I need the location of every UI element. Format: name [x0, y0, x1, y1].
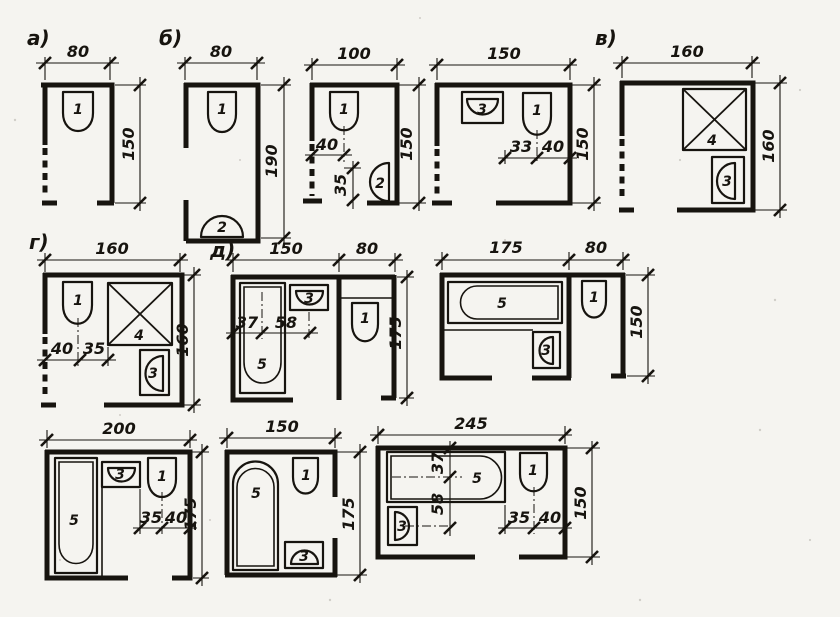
toilet-symbol: 1	[63, 92, 93, 131]
plan-b-label: б)	[159, 26, 182, 50]
fixture-number: 2	[217, 220, 227, 236]
plan-g-height-dim: 160	[173, 267, 201, 413]
fixture-number: 1	[339, 102, 349, 118]
plan-d: 150 150 3 1 33 40	[429, 44, 601, 211]
floor-plan-sheet: а) 80 150 1 б) 80	[0, 0, 840, 617]
dim-value: 40	[50, 339, 73, 358]
plan-g-label: г)	[29, 230, 49, 254]
fixture-number: 3	[304, 291, 314, 307]
fixture-number: 3	[397, 519, 407, 535]
fixture-number: 1	[217, 102, 227, 118]
plan-k: 245 150 5 3 37 58	[370, 414, 600, 565]
plan-a-height-dim: 150	[115, 77, 146, 211]
plan-b-width-dim: 80	[177, 42, 265, 80]
dim-value: 40	[541, 137, 564, 156]
washbasin-symbol: 3	[140, 350, 169, 395]
dim-value: 58	[275, 313, 297, 332]
plan-v: в) 160 160 4 3	[595, 26, 787, 218]
plan-v-walls	[619, 81, 753, 210]
paper-noise	[14, 17, 811, 601]
fixture-number: 1	[73, 102, 83, 118]
fixture-number: 1	[532, 103, 542, 119]
plan-k-width-dim: 245	[370, 414, 572, 444]
dim-value: 40	[538, 508, 561, 527]
plan-dd-label: д)	[209, 238, 235, 262]
washbasin-symbol: 3	[462, 92, 503, 123]
plan-c: 100 150 1 40 35 2	[303, 44, 426, 211]
washbasin-symbol: 3	[285, 542, 323, 568]
fixture-number: 5	[69, 513, 79, 529]
fixture-number: 3	[115, 467, 125, 483]
plan-g-width-value: 160	[95, 239, 128, 258]
dim-value: 37	[428, 451, 447, 474]
toilet-symbol: 1	[523, 93, 551, 135]
dim-value: 40	[164, 508, 187, 527]
fixture-number: 1	[301, 468, 311, 484]
plan-i: 200 175 5 3 1 35	[39, 419, 209, 586]
plan-dd: д) 150 80 175 5 3	[209, 238, 414, 406]
plan-a-height-value: 150	[119, 127, 138, 160]
dim-value: 35	[508, 508, 530, 527]
toilet-symbol: 1	[208, 92, 236, 132]
plan-j-height-dim: 175	[337, 444, 367, 583]
fixture-number: 3	[722, 174, 732, 190]
plan-d-height-dim: 150	[572, 77, 601, 211]
dim-value: 58	[428, 493, 447, 515]
dim-value: 35	[331, 174, 350, 196]
plan-a-walls	[41, 83, 114, 203]
plan-i-width-value: 200	[102, 419, 135, 438]
fixture-number: 3	[541, 343, 551, 359]
plan-j: 150 175 5 1 3	[219, 417, 367, 583]
plan-k-height-dim: 150	[567, 441, 600, 565]
bathtub-symbol: 5	[55, 458, 97, 573]
fixture-number: 4	[133, 328, 144, 344]
plan-g-inner-dims: 40 35	[37, 339, 116, 366]
toilet-symbol: 1	[63, 282, 92, 324]
plan-k-inner-dims: 35 40	[498, 505, 572, 534]
bathtub-symbol: 5	[448, 282, 562, 323]
plan-h-width-dims: 175 80	[434, 238, 630, 270]
fixture-number: 5	[472, 471, 482, 487]
plan-h-width-left-value: 175	[489, 238, 522, 257]
washbasin-symbol: 2	[370, 163, 389, 201]
plan-j-width-value: 150	[265, 417, 298, 436]
fixture-number: 3	[477, 102, 487, 118]
dim-value: 35	[140, 508, 162, 527]
fixture-number: 5	[257, 357, 267, 373]
washbasin-symbol: 3	[712, 157, 744, 203]
plan-c-width-value: 100	[337, 44, 370, 63]
dim-value: 40	[315, 135, 338, 154]
plan-c-height-value: 150	[397, 127, 416, 160]
washbasin-symbol: 2	[201, 216, 243, 237]
fixture-number: 3	[299, 549, 309, 565]
plan-a-label: а)	[27, 26, 50, 50]
washbasin-symbol: 3	[533, 332, 560, 368]
plan-b-height-dim: 190	[261, 77, 291, 246]
plan-i-width-dim: 200	[39, 419, 197, 448]
plans-drawing: а) 80 150 1 б) 80	[0, 0, 840, 617]
plan-v-label: в)	[595, 26, 617, 50]
plan-c-height-dim: 150	[397, 77, 426, 211]
plan-dd-width-dims: 150 80	[225, 239, 403, 272]
plan-d-width-dim: 150	[429, 44, 577, 80]
plan-dd-height-dim: 175	[386, 270, 414, 406]
plan-v-width-dim: 160	[613, 42, 760, 78]
plan-b: б) 80 190 1 2	[159, 26, 291, 246]
toilet-symbol: 1	[352, 303, 378, 341]
bathtub-symbol: 5	[233, 462, 278, 570]
plan-b-width-value: 80	[210, 42, 232, 61]
plan-h-height-dim: 150	[626, 267, 655, 384]
shower-tray-symbol: 4	[108, 283, 172, 345]
fixture-number: 1	[589, 290, 599, 306]
dim-value: 37	[236, 313, 259, 332]
plan-h: 175 80 150 5 3 1	[434, 238, 655, 384]
toilet-symbol: 1	[148, 458, 176, 497]
plan-d-height-value: 150	[573, 127, 592, 160]
plan-c-width-dim: 100	[304, 44, 405, 80]
plan-a-width-value: 80	[67, 42, 89, 61]
dim-value: 35	[83, 339, 105, 358]
shower-tray-symbol: 4	[683, 89, 746, 150]
plan-h-width-right-value: 80	[585, 238, 607, 257]
plan-v-width-value: 160	[670, 42, 703, 61]
dim-value: 33	[510, 137, 532, 156]
fixture-number: 1	[73, 293, 83, 309]
plan-g-width-dim: 160	[37, 239, 188, 272]
fixture-number: 5	[497, 296, 507, 312]
plan-j-walls	[225, 450, 337, 577]
plan-dd-width-left-value: 150	[269, 239, 302, 258]
plan-k-height-value: 150	[571, 486, 590, 519]
fixture-number: 1	[528, 463, 538, 479]
plan-d-width-value: 150	[487, 44, 520, 63]
toilet-symbol: 1	[582, 281, 606, 318]
plan-v-height-value: 160	[759, 129, 778, 162]
fixture-number: 2	[375, 176, 385, 192]
plan-g: г) 160 160 1 4 3	[29, 230, 201, 413]
fixture-number: 3	[148, 366, 158, 382]
plan-k-width-value: 245	[454, 414, 487, 433]
plan-j-width-dim: 150	[219, 417, 342, 448]
washbasin-symbol: 3	[102, 462, 140, 487]
toilet-symbol: 1	[520, 453, 547, 491]
fixture-number: 1	[360, 311, 370, 327]
plan-b-height-value: 190	[262, 144, 281, 177]
plan-j-height-value: 175	[339, 497, 358, 530]
plan-v-height-dim: 160	[755, 75, 787, 218]
fixture-number: 1	[157, 469, 167, 485]
toilet-symbol: 1	[330, 92, 358, 130]
plan-dd-width-right-value: 80	[356, 239, 378, 258]
toilet-symbol: 1	[293, 458, 318, 494]
plan-h-height-value: 150	[627, 305, 646, 338]
plan-a: а) 80 150 1	[27, 26, 146, 211]
washbasin-symbol: 3	[290, 285, 328, 310]
fixture-number: 4	[706, 133, 717, 149]
plan-c-basin-offset-dim: 35	[331, 161, 361, 209]
fixture-number: 5	[251, 486, 261, 502]
